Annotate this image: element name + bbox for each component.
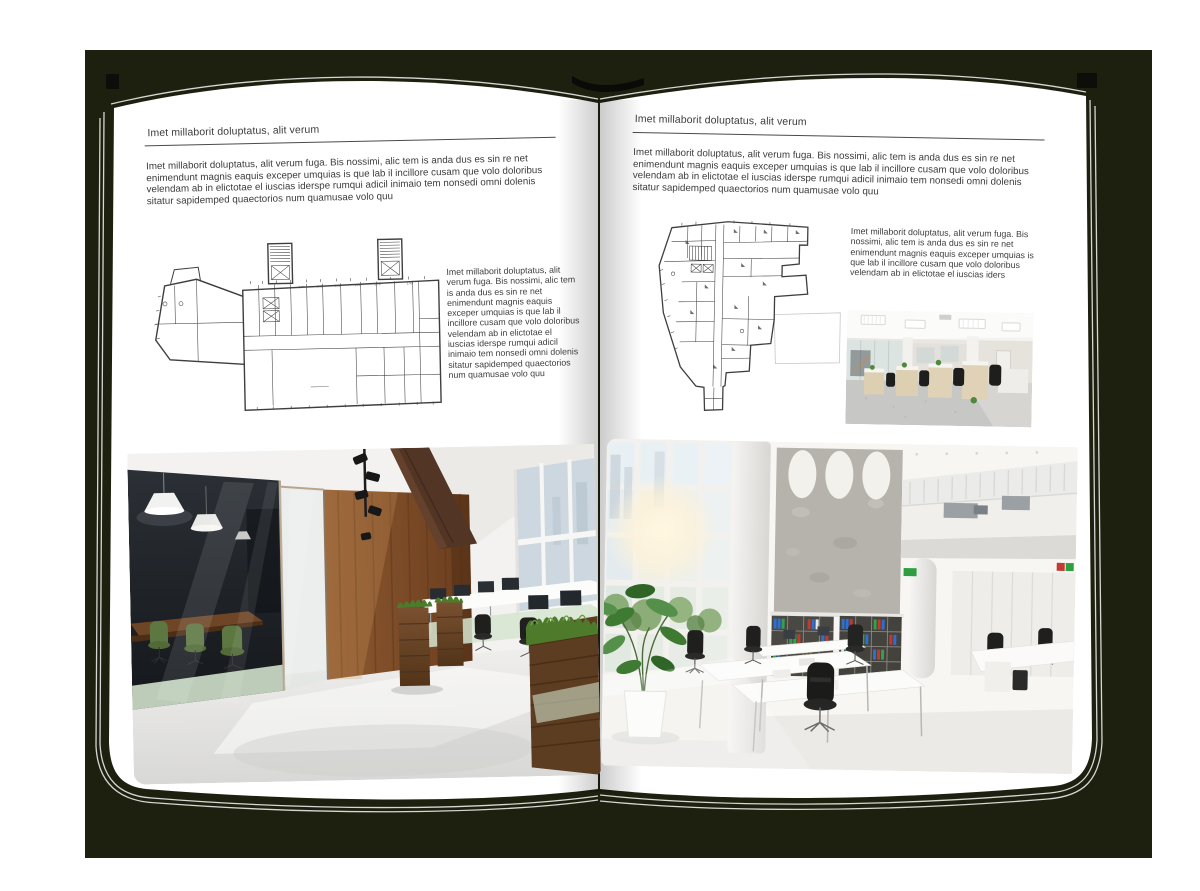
caption-column: Imet millaborit doluptatus, alit verum f… — [850, 226, 1038, 281]
title-rule — [633, 132, 1045, 141]
intro-paragraph: Imet millaborit doluptatus, alit verum f… — [632, 147, 1033, 201]
door-swing-marks — [683, 228, 800, 370]
magazine-spread-mockup: Imet millaborit doluptatus, alit verum I… — [0, 0, 1200, 891]
downlight-glows — [788, 450, 891, 500]
photo-bright-tall-office — [601, 439, 1078, 775]
photo-workstations-office — [845, 310, 1033, 427]
right-page-content: Imet millaborit doluptatus, alit verum I… — [0, 0, 1200, 891]
floor-plan-right — [652, 217, 844, 418]
page-title: Imet millaborit doluptatus, alit verum — [635, 113, 807, 128]
